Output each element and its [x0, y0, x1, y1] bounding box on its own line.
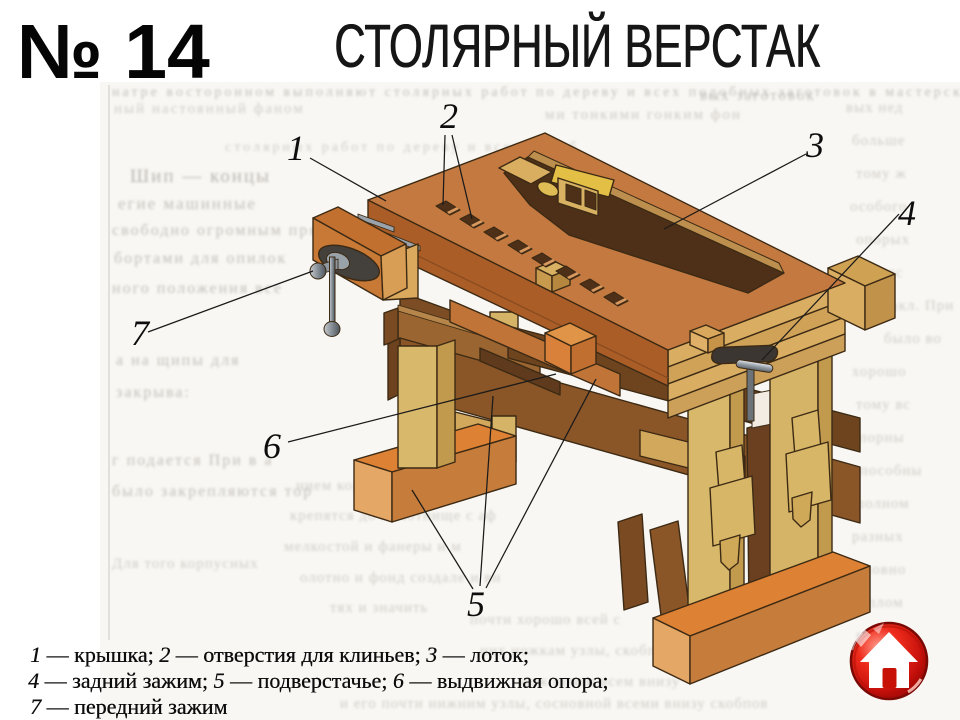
svg-text:5: 5	[467, 584, 485, 624]
svg-text:7: 7	[131, 313, 151, 353]
svg-text:3: 3	[805, 125, 824, 165]
svg-text:2: 2	[440, 96, 458, 136]
svg-text:1: 1	[287, 128, 305, 168]
svg-text:4: 4	[898, 193, 916, 233]
svg-text:6: 6	[263, 426, 281, 466]
